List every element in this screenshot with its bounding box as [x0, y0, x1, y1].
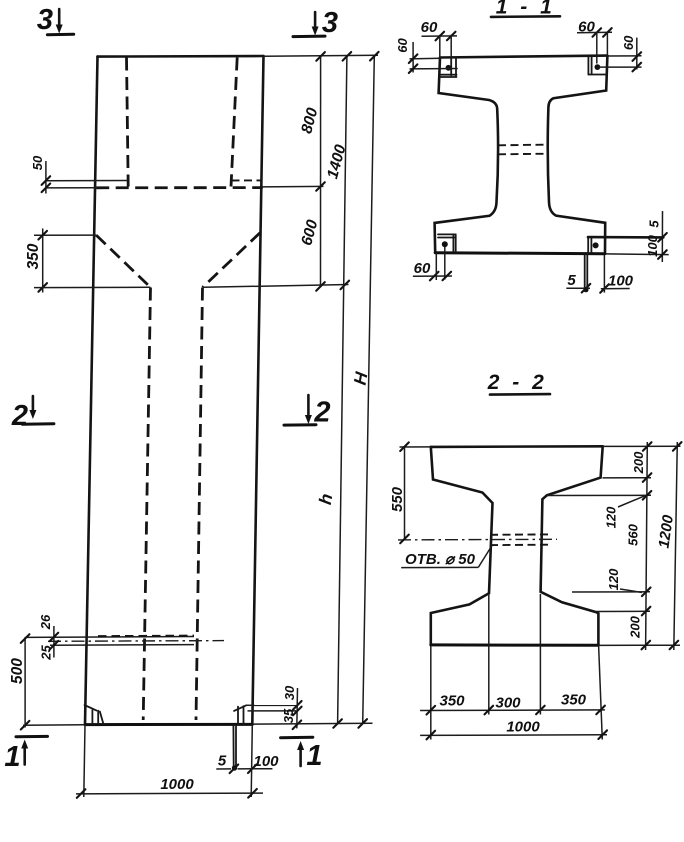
- svg-text:550: 550: [389, 486, 406, 512]
- svg-text:100: 100: [253, 753, 279, 770]
- svg-text:500: 500: [9, 658, 26, 684]
- svg-text:3: 3: [37, 4, 53, 36]
- svg-text:120: 120: [604, 506, 619, 528]
- svg-text:5: 5: [647, 220, 662, 228]
- svg-text:26: 26: [38, 614, 53, 630]
- svg-text:2: 2: [11, 400, 28, 432]
- svg-text:50: 50: [30, 155, 45, 170]
- svg-text:100: 100: [608, 273, 634, 290]
- svg-text:1000: 1000: [506, 719, 540, 736]
- svg-text:30: 30: [282, 685, 297, 700]
- svg-text:350: 350: [561, 692, 587, 709]
- svg-text:60: 60: [421, 19, 438, 36]
- svg-text:5: 5: [567, 272, 576, 289]
- svg-text:200: 200: [628, 615, 643, 638]
- svg-text:100: 100: [645, 234, 660, 256]
- svg-text:350: 350: [25, 243, 42, 269]
- svg-text:ОТВ. ⌀ 50: ОТВ. ⌀ 50: [405, 551, 476, 568]
- svg-text:1000: 1000: [160, 776, 194, 793]
- svg-text:560: 560: [626, 523, 641, 545]
- svg-text:200: 200: [631, 451, 646, 474]
- svg-text:35: 35: [281, 708, 296, 723]
- svg-text:1: 1: [306, 740, 322, 772]
- svg-text:5: 5: [218, 753, 227, 770]
- svg-text:2 - 2: 2 - 2: [487, 371, 548, 394]
- svg-text:350: 350: [439, 693, 465, 710]
- svg-text:120: 120: [606, 568, 621, 590]
- svg-text:300: 300: [495, 695, 521, 712]
- svg-text:2: 2: [313, 397, 330, 429]
- svg-text:3: 3: [322, 7, 338, 39]
- svg-text:60: 60: [621, 35, 636, 50]
- svg-text:60: 60: [395, 38, 410, 53]
- svg-text:25: 25: [39, 645, 54, 661]
- svg-text:60: 60: [414, 260, 431, 277]
- svg-text:1: 1: [4, 741, 20, 773]
